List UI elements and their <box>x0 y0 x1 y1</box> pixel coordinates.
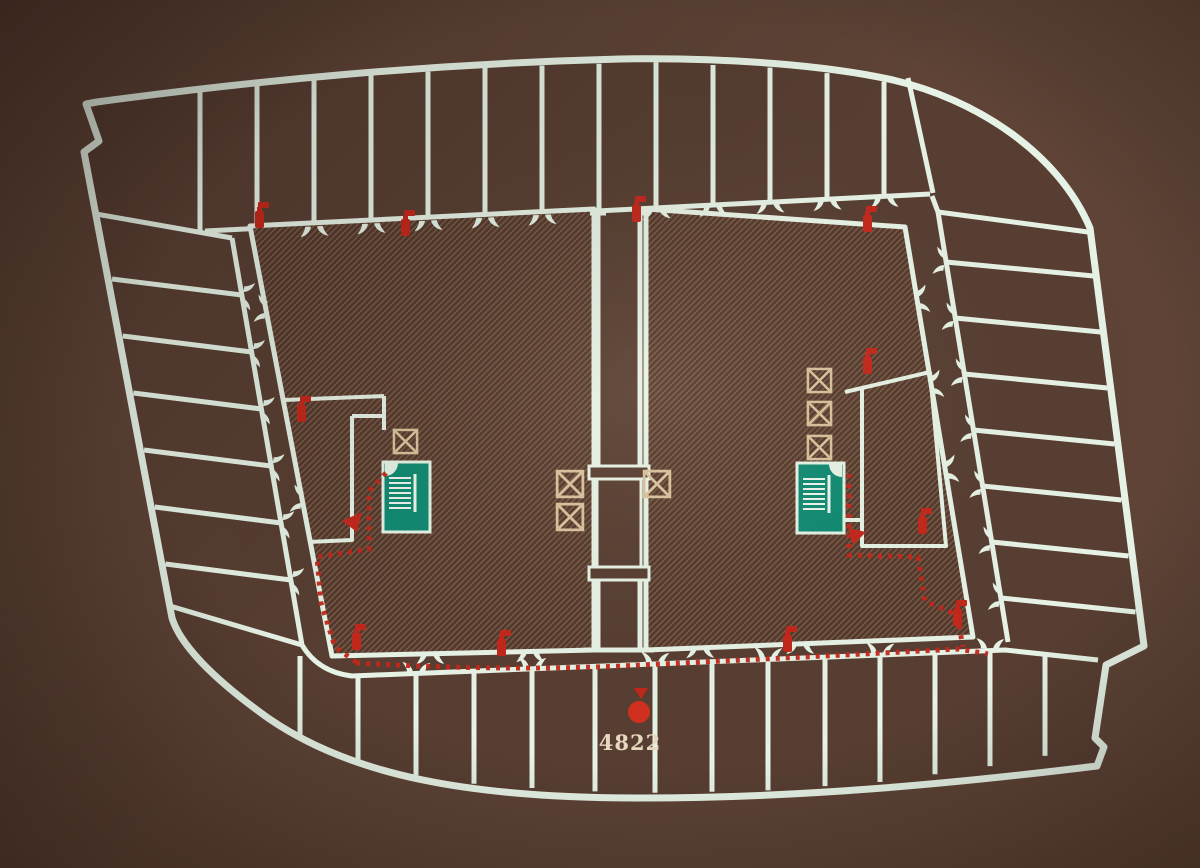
evacuation-plan-photo: 4822 <box>0 0 1200 868</box>
parking-garage-floor-plan: 4822 <box>0 0 1200 868</box>
corner-shadow-overlay <box>0 0 1200 868</box>
